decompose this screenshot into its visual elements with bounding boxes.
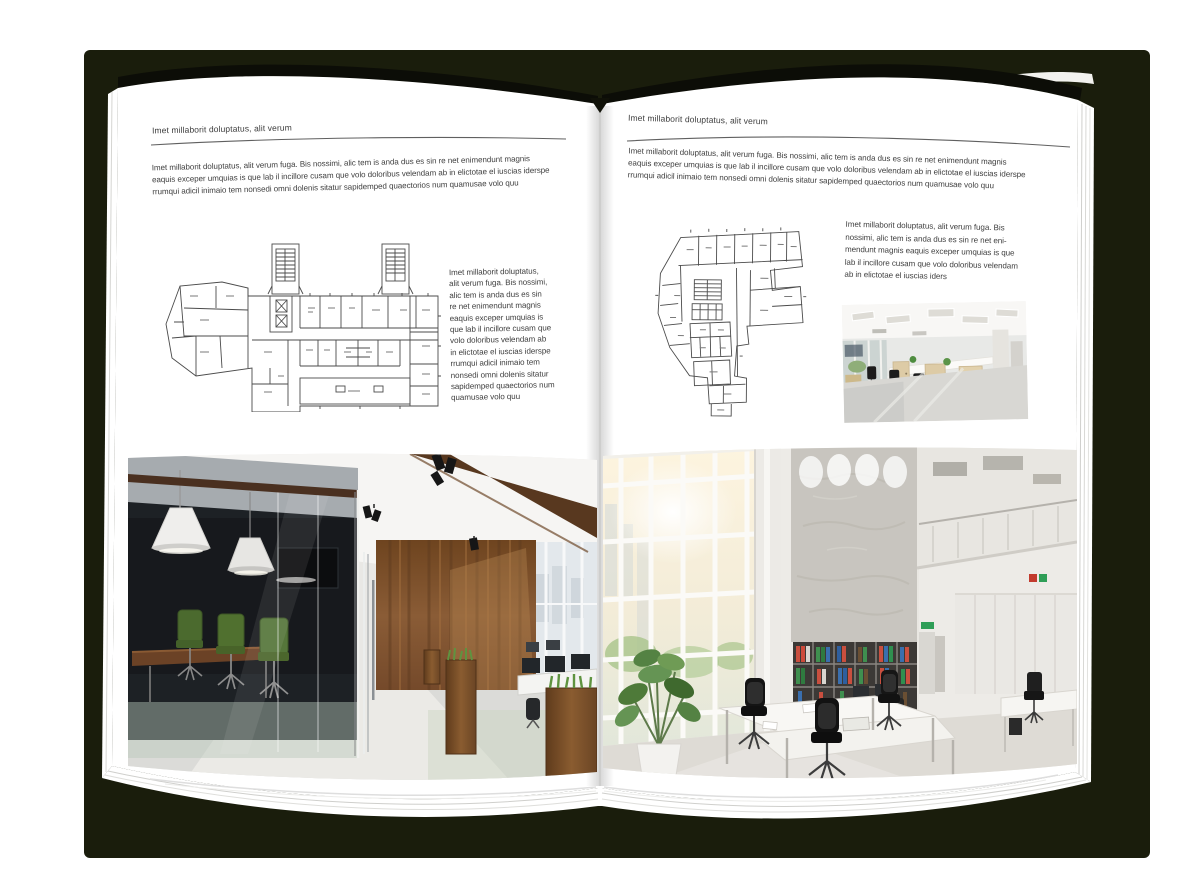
left-header-rule xyxy=(150,134,568,150)
left-page-caption: Imet millaborit doluptatus,alit verum fu… xyxy=(449,265,579,404)
stair-tower-icon xyxy=(378,244,413,294)
concrete-wall xyxy=(791,446,917,642)
exit-sign-icon xyxy=(921,622,934,629)
floor-plan-left xyxy=(160,236,442,412)
aed-sign-icon xyxy=(1039,574,1047,582)
open-plan-office-photo xyxy=(842,301,1028,423)
back-windows xyxy=(843,340,888,383)
floor-plan-right xyxy=(649,225,811,418)
doorway xyxy=(919,632,935,694)
stair-tower-icon xyxy=(268,244,303,294)
magazine-mockup: Imet millaborit doluptatus, alit verum I… xyxy=(0,0,1200,891)
conference-room xyxy=(128,452,358,758)
loft-office-photo xyxy=(128,452,597,784)
bright-office-atrium-photo xyxy=(603,446,1077,784)
trash-bin xyxy=(1009,718,1022,735)
right-page-caption: Imet millaborit doluptatus, alit verum f… xyxy=(844,219,1045,286)
first-aid-sign-icon xyxy=(1029,574,1037,582)
